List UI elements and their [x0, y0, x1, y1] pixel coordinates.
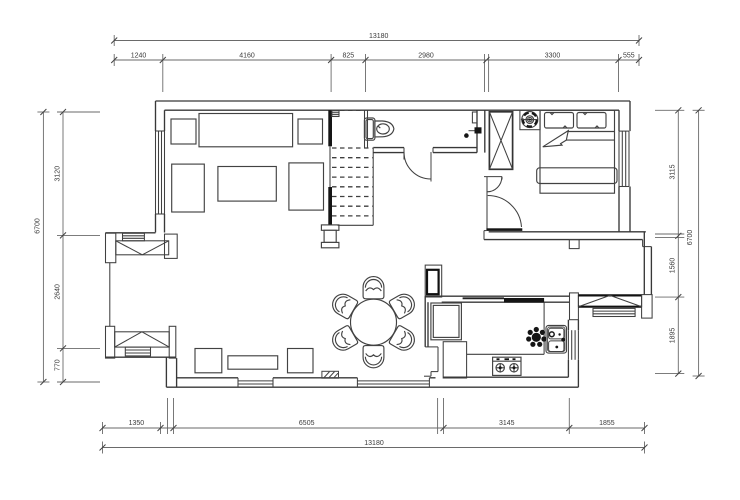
svg-text:13180: 13180 [369, 33, 389, 40]
svg-text:1560: 1560 [670, 258, 677, 274]
svg-text:1855: 1855 [599, 420, 615, 427]
svg-text:6505: 6505 [299, 420, 315, 427]
svg-text:6700: 6700 [35, 218, 42, 234]
svg-text:770: 770 [55, 359, 62, 371]
svg-text:3300: 3300 [545, 53, 561, 60]
svg-text:1350: 1350 [129, 420, 145, 427]
svg-text:2640: 2640 [55, 284, 62, 300]
svg-text:3145: 3145 [499, 420, 515, 427]
svg-text:1895: 1895 [670, 328, 677, 344]
svg-text:13180: 13180 [364, 440, 384, 447]
svg-text:1240: 1240 [131, 53, 147, 60]
svg-text:825: 825 [342, 53, 354, 60]
svg-text:2980: 2980 [418, 53, 434, 60]
svg-text:3115: 3115 [670, 164, 677, 179]
svg-text:555: 555 [623, 53, 635, 60]
svg-text:3120: 3120 [55, 166, 62, 182]
svg-text:6700: 6700 [687, 230, 694, 246]
svg-text:4160: 4160 [239, 53, 255, 60]
